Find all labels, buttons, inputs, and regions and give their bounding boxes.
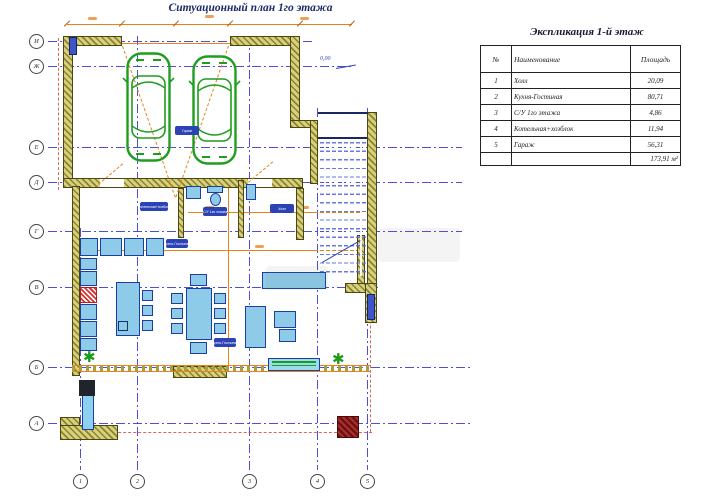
table-header-row: № Наименование Площадь [481, 46, 681, 73]
chair [142, 305, 153, 316]
window [69, 37, 77, 55]
table-row: 4 Котельная+хозблок 11,94 [481, 121, 681, 137]
stair-landing-edge [318, 112, 368, 114]
room-label-kitchen: Кухня-Гостиная [166, 239, 188, 248]
axis-marker: 1 [73, 474, 88, 489]
chair [142, 290, 153, 301]
stove [80, 287, 97, 303]
staircase [318, 142, 366, 276]
chair [142, 320, 153, 331]
chair [171, 308, 183, 319]
wall [63, 36, 73, 188]
chair [190, 274, 207, 286]
chair [214, 323, 226, 334]
kitchen-cabinet [80, 271, 97, 286]
kitchen-cabinet [100, 238, 122, 256]
dimension-text [205, 15, 214, 18]
kitchen-cabinet [80, 321, 97, 337]
stair-landing-edge [318, 137, 367, 139]
kitchen-cabinet [80, 304, 97, 320]
dimension-text [300, 17, 309, 20]
grid-line-h [48, 287, 378, 288]
chair [214, 308, 226, 319]
elevation-mark: 0,00 [320, 56, 331, 62]
explication-table: № Наименование Площадь 1 Холл 20,09 2 Ку… [480, 45, 681, 166]
table-row: 3 С/У 1го этажа 4,86 [481, 105, 681, 121]
table-row: 5 Гараж 56,31 [481, 137, 681, 153]
axis-marker: 2 [130, 474, 145, 489]
room-label-living: Кухня-Гостиная [214, 338, 236, 347]
col-header-name: Наименование [512, 46, 631, 73]
terrace-edge [72, 365, 370, 372]
plant-icon: ✱ [83, 350, 96, 365]
sink [118, 321, 128, 331]
chair [214, 293, 226, 304]
armchair [274, 311, 296, 328]
grid-line-v [249, 36, 250, 470]
wall [178, 188, 184, 238]
wall [238, 180, 244, 238]
kitchen-cabinet [80, 258, 97, 270]
floor-plan-sheet: Ситуационный план 1го этажа Экспликация … [0, 0, 717, 498]
wall [290, 36, 300, 126]
chair [171, 323, 183, 334]
page-title: Ситуационный план 1го этажа [133, 2, 368, 14]
chair [171, 293, 183, 304]
chair [190, 342, 207, 354]
col-header-num: № [481, 46, 512, 73]
kitchen-cabinet [124, 238, 144, 256]
boundary-line [58, 38, 59, 190]
entry-mat [79, 380, 95, 396]
kitchen-cabinet [80, 238, 98, 256]
axis-marker: Г [29, 224, 44, 239]
table-total-row: 173,91 м² [481, 153, 681, 166]
axis-marker: В [29, 280, 44, 295]
wall [310, 120, 318, 184]
axis-marker: А [29, 416, 44, 431]
appliance [186, 186, 201, 199]
axis-marker: Е [29, 140, 44, 155]
axis-marker: 3 [242, 474, 257, 489]
table-row: 1 Холл 20,09 [481, 73, 681, 89]
car-top-view [192, 55, 237, 165]
grid-line-h [48, 147, 462, 148]
watermark [266, 266, 328, 290]
bbq-grill [337, 416, 359, 438]
table-row: 2 Кухня-Гостиная 80,71 [481, 89, 681, 105]
dimension-text [88, 17, 97, 20]
toilet-tank [207, 186, 223, 193]
axis-marker: 4 [310, 474, 325, 489]
wall [72, 186, 80, 376]
total-area: 173,91 м² [631, 153, 681, 166]
explication-title: Экспликация 1-й этаж [492, 26, 682, 38]
axis-marker: Б [29, 360, 44, 375]
room-label-hall: Холл [270, 204, 294, 213]
plant-icon: ✱ [332, 352, 345, 367]
sofa [245, 306, 266, 348]
col-header-area: Площадь [631, 46, 681, 73]
room-label-wc: С/У 1го этажа [203, 207, 227, 216]
dimension-line [67, 24, 352, 25]
dining-table [186, 288, 212, 340]
armchair [279, 329, 296, 342]
axis-marker: 5 [360, 474, 375, 489]
room-label-garage: Гараж [175, 126, 199, 135]
garage-door-sill [122, 43, 230, 44]
dimension-text [255, 245, 264, 248]
room-label-boiler: Котельная+хозблок [140, 202, 168, 211]
cabinet [246, 184, 256, 200]
axis-marker: Ж [29, 59, 44, 74]
axis-marker: И [29, 34, 44, 49]
watermark [378, 228, 460, 262]
planter [268, 358, 320, 371]
wall [296, 188, 304, 240]
axis-marker: Д [29, 175, 44, 190]
kitchen-cabinet [146, 238, 164, 256]
wall [367, 112, 377, 287]
toilet-bowl [210, 193, 221, 206]
window [367, 294, 375, 320]
car-top-view [126, 52, 171, 162]
